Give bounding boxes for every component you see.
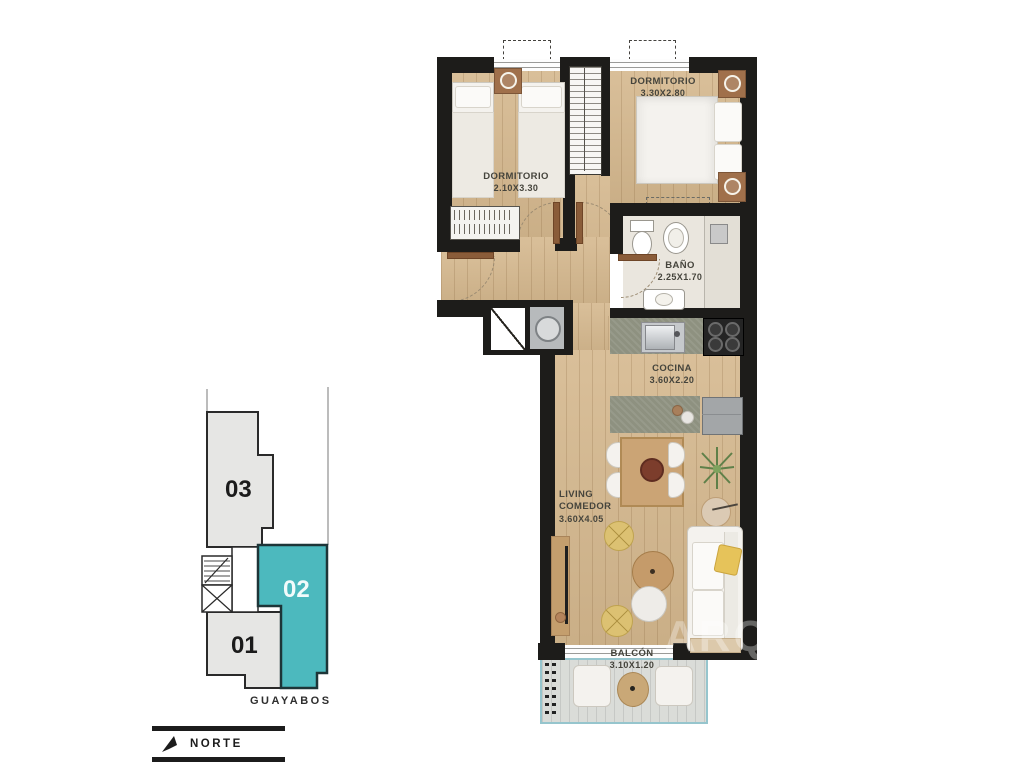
double-bed-icon — [636, 96, 718, 184]
lamp-icon — [724, 75, 741, 92]
floor-lamp-icon — [701, 497, 731, 527]
entry-door-icon — [447, 252, 494, 259]
console-decor-icon — [555, 612, 566, 623]
fridge-door-line-icon — [702, 414, 741, 415]
burner-icon — [708, 337, 723, 352]
ac-unit-outline-icon — [503, 40, 551, 60]
wall-living-bottom-left — [538, 643, 565, 660]
bidet-basin-icon — [668, 228, 684, 248]
bowl-decor-icon — [681, 411, 694, 424]
unit-01-label: 01 — [231, 632, 258, 659]
burner-icon — [708, 322, 723, 337]
sink-basin-icon — [655, 293, 673, 306]
lamp-icon — [500, 72, 517, 89]
room-label-bano: BAÑO 2.25x1.70 — [648, 260, 712, 284]
wall-bedroom1-bottom — [437, 239, 520, 252]
north-arrow-icon — [160, 734, 180, 754]
fridge-icon — [702, 397, 743, 435]
lamp-icon — [724, 178, 741, 195]
closet-icon — [569, 66, 602, 175]
room-label-dormitorio2: DORMITORIO 3.30x2.80 — [618, 76, 708, 100]
room-label-dormitorio1: DORMITORIO 2.10x3.30 — [466, 171, 566, 195]
keyplan-landing — [232, 547, 258, 612]
compass-bar-top — [152, 726, 285, 731]
wall-closet-right — [601, 66, 610, 176]
wall-bath-left — [610, 216, 623, 254]
dresser-rack-icon — [454, 224, 514, 234]
coffee-table-dot-icon — [650, 569, 655, 574]
room-dims: 3.60x4.05 — [559, 514, 629, 526]
faucet-icon — [674, 331, 680, 337]
room-name: DORMITORIO — [466, 171, 566, 183]
room-label-living: LIVING COMEDOR 3.60x4.05 — [559, 489, 629, 525]
burner-icon — [725, 337, 740, 352]
room-name: LIVING — [559, 489, 629, 501]
tv-icon — [565, 546, 568, 624]
plant-icon — [698, 443, 736, 491]
wall-bedroom2-bath — [610, 203, 757, 216]
pillow-icon — [521, 86, 562, 108]
room-name: COCINA — [641, 363, 703, 375]
room-name: BALCÓN — [598, 648, 666, 660]
room-dims: 2.25x1.70 — [648, 272, 712, 284]
pillow-icon — [455, 86, 491, 108]
washing-machine-drum-icon — [535, 316, 561, 342]
closet-rail-icon — [584, 68, 585, 171]
street-label: GUAYABOS — [250, 695, 332, 707]
room-name-2: COMEDOR — [559, 501, 629, 513]
room-label-balcon: BALCÓN 3.10x1.20 — [598, 648, 666, 672]
unit-02-label: 02 — [283, 576, 310, 603]
pouf-icon — [604, 521, 634, 551]
room-dims: 3.30x2.80 — [618, 88, 708, 100]
side-table-icon — [631, 586, 667, 622]
room-dims: 3.60x2.20 — [641, 375, 703, 387]
shower-fixture-icon — [710, 224, 728, 244]
ac-unit-outline-icon — [629, 40, 676, 60]
dresser-rack-icon — [454, 210, 514, 220]
pillow-icon — [714, 102, 742, 142]
balcony-louver-icon — [545, 663, 549, 717]
compass-bar-bottom — [152, 757, 285, 762]
compass-label: NORTE — [190, 738, 243, 750]
burner-icon — [725, 322, 740, 337]
pouf-icon — [601, 605, 633, 637]
shaft-icon — [489, 306, 527, 352]
bedroom2-door-icon — [576, 202, 583, 244]
unit-03-label: 03 — [225, 476, 252, 503]
centerpiece-icon — [640, 458, 664, 482]
kitchen-sink-bowl-icon — [645, 325, 675, 350]
room-name: DORMITORIO — [618, 76, 708, 88]
window-bedroom2-icon — [610, 59, 689, 71]
room-dims: 2.10x3.30 — [466, 183, 566, 195]
bedroom1-door-icon — [553, 202, 560, 244]
key-plan: 03 02 01 GUAYABOS — [195, 385, 370, 720]
balcony-louver-icon — [552, 663, 556, 717]
room-label-cocina: COCINA 3.60x2.20 — [641, 363, 703, 387]
watermark: ARQ — [664, 612, 771, 662]
room-dims: 3.10x1.20 — [598, 660, 666, 672]
floorplan-page: DORMITORIO 2.10x3.30 DORMITORIO 3.30x2.8… — [0, 0, 1024, 768]
room-name: BAÑO — [648, 260, 712, 272]
balcony-table-center-dot-icon — [630, 686, 635, 691]
